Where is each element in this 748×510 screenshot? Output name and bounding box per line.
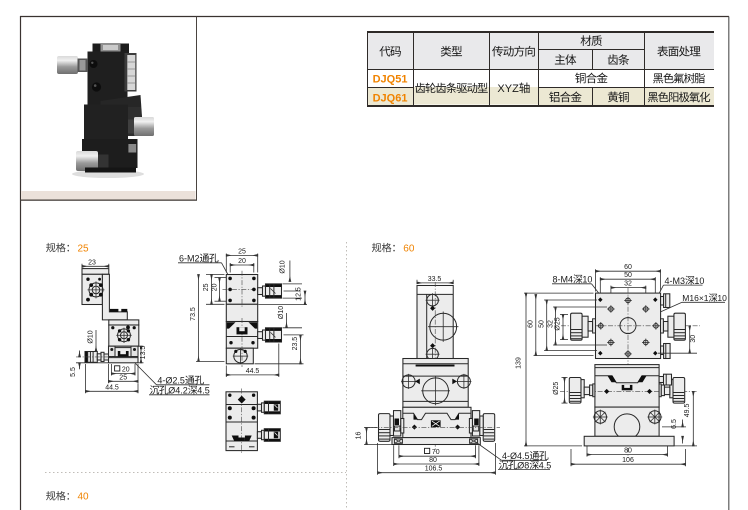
svg-text:60: 60 xyxy=(403,243,415,254)
svg-text:40: 40 xyxy=(78,492,90,503)
svg-text:DJQ61: DJQ61 xyxy=(373,92,408,104)
svg-text:25: 25 xyxy=(78,243,90,254)
svg-text:XYZ: XYZ xyxy=(497,83,519,95)
svg-text:DJQ51: DJQ51 xyxy=(373,73,408,85)
